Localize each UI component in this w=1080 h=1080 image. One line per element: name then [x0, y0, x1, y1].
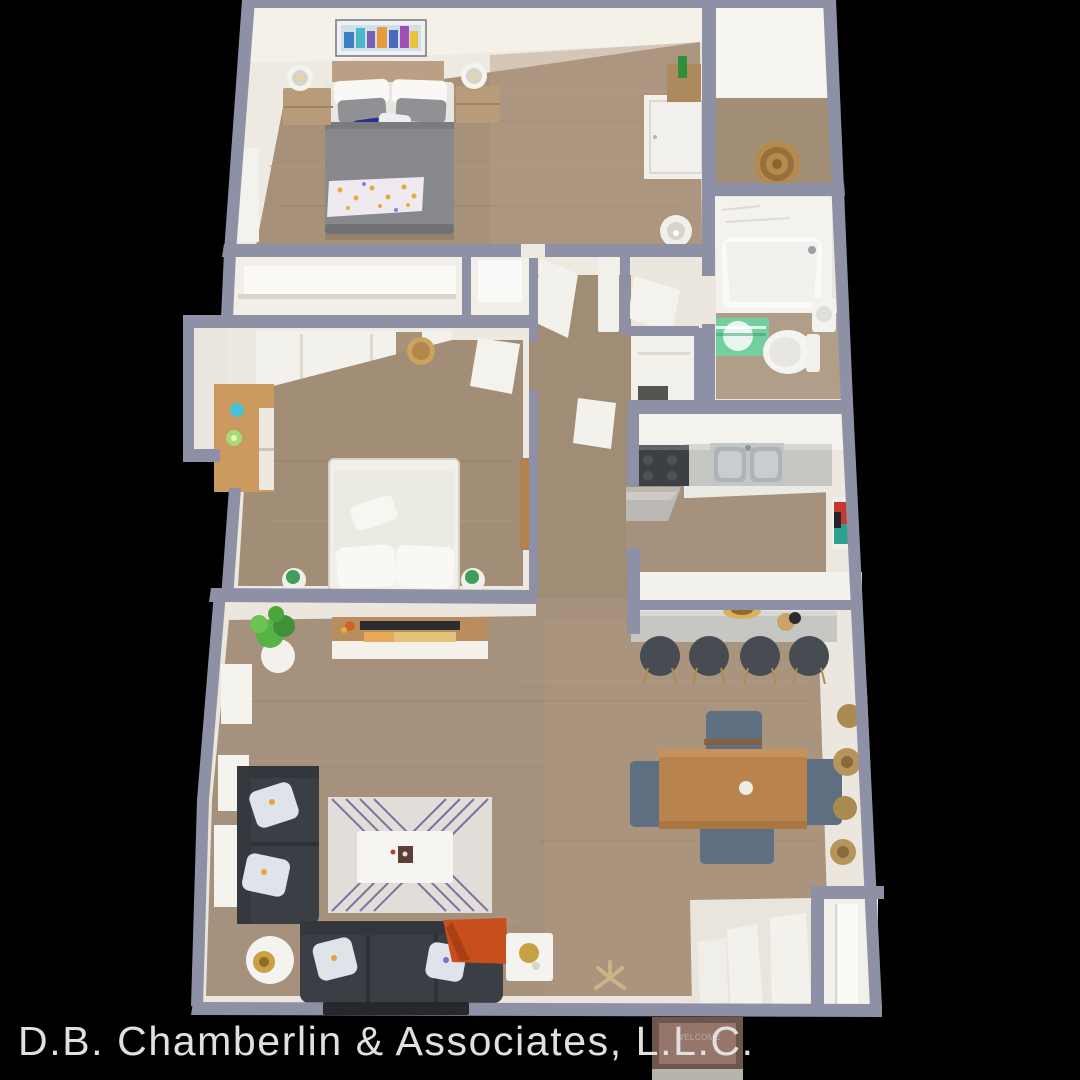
svg-text:D.B. Chamberlin & Associates,: D.B. Chamberlin & Associates, L.L.C.: [18, 1018, 755, 1064]
